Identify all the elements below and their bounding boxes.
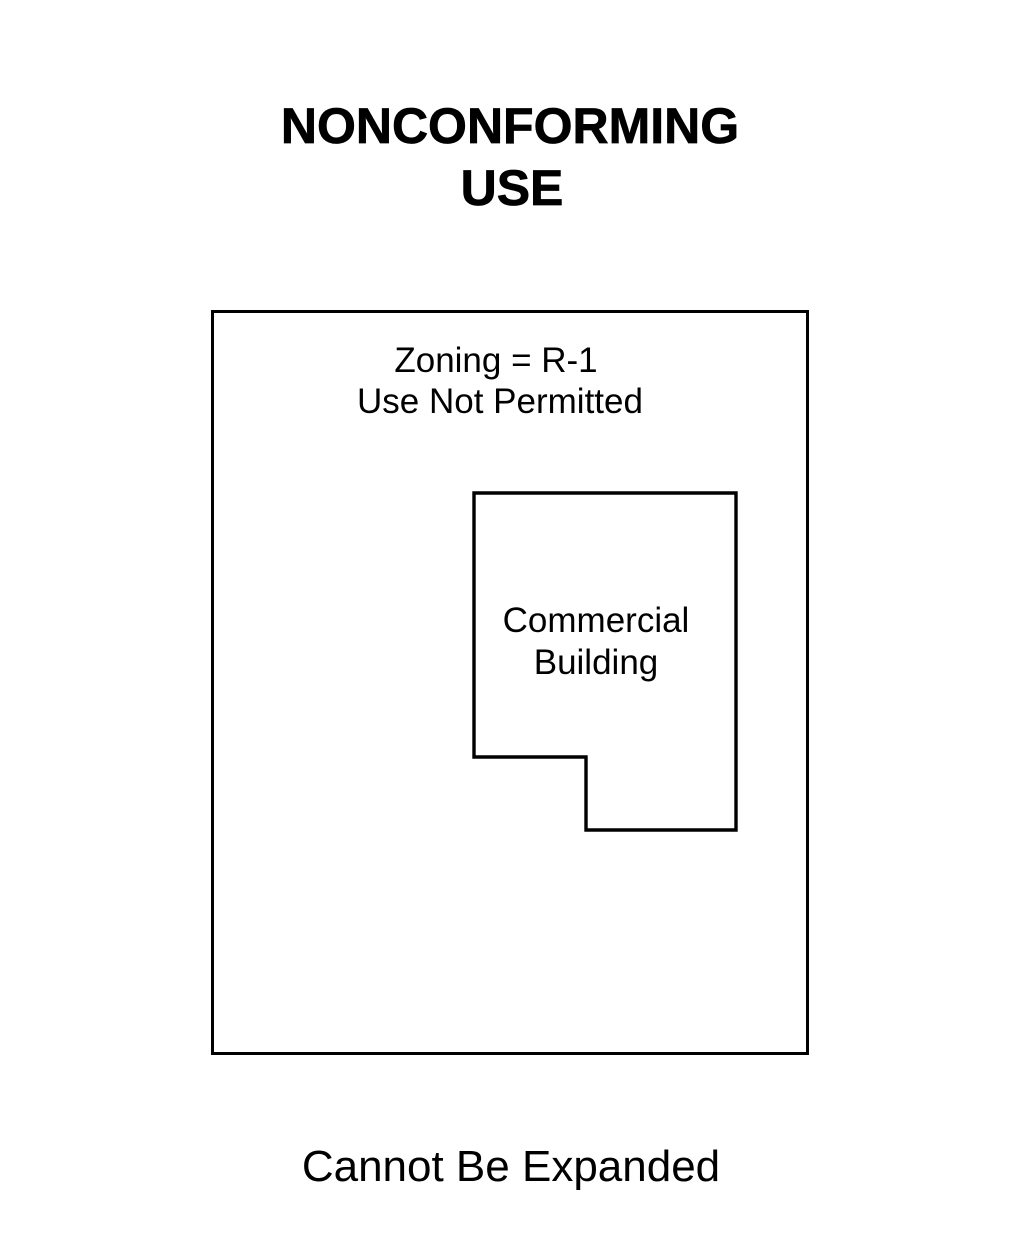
svg-text:Commercial: Commercial: [503, 601, 690, 640]
svg-text:USE: USE: [461, 160, 564, 216]
svg-text:Cannot Be Expanded: Cannot Be Expanded: [302, 1142, 720, 1191]
svg-text:Use Not Permitted: Use Not Permitted: [357, 382, 643, 421]
svg-text:Building: Building: [534, 643, 659, 682]
svg-text:NONCONFORMING: NONCONFORMING: [281, 98, 739, 154]
svg-text:Zoning = R-1: Zoning = R-1: [394, 341, 597, 380]
